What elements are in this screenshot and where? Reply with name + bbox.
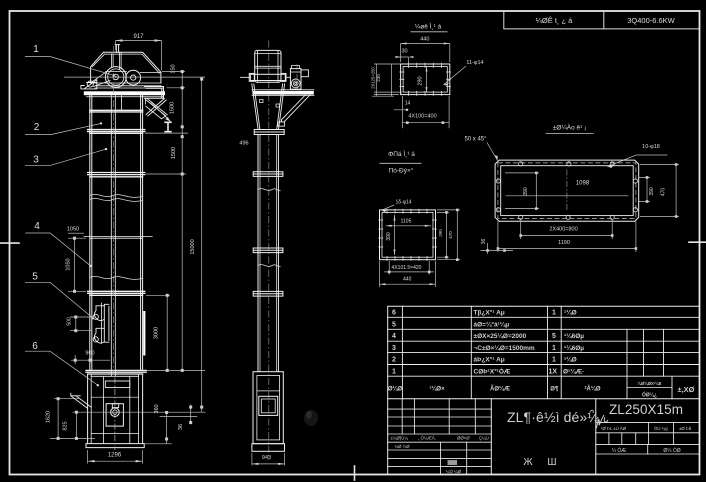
svg-text:30: 30 bbox=[401, 49, 407, 55]
svg-text:496: 496 bbox=[239, 141, 248, 147]
svg-text:4X101.5=420: 4X101.5=420 bbox=[392, 265, 422, 271]
svg-text:10-φ18: 10-φ18 bbox=[642, 144, 660, 150]
svg-text:1296: 1296 bbox=[108, 453, 122, 459]
svg-text:¼Ø ½Ø: ¼Ø ½Ø bbox=[395, 444, 411, 449]
svg-text:2: 2 bbox=[34, 122, 40, 133]
svg-text:1500: 1500 bbox=[170, 102, 176, 114]
svg-text:390: 390 bbox=[386, 232, 392, 241]
svg-text:Ç¼Ù: Ç¼Ù bbox=[479, 436, 489, 441]
svg-text:Ж: Ж bbox=[523, 457, 533, 468]
svg-text:¼Ó ¼Ø: ¼Ó ¼Ø bbox=[446, 469, 462, 474]
svg-text:1δ-φ14: 1δ-φ14 bbox=[395, 200, 411, 206]
svg-text:50 x 45°: 50 x 45° bbox=[464, 137, 487, 143]
svg-text:15000: 15000 bbox=[190, 239, 196, 254]
svg-text:1: 1 bbox=[33, 44, 39, 55]
svg-text:360: 360 bbox=[154, 404, 160, 413]
svg-text:¹¼6Øµ: ¹¼6Øµ bbox=[564, 344, 584, 352]
svg-text:1: 1 bbox=[552, 345, 556, 352]
svg-text:±,XØ: ±,XØ bbox=[677, 385, 694, 394]
svg-text:1190: 1190 bbox=[558, 240, 570, 246]
svg-text:4: 4 bbox=[34, 221, 40, 232]
svg-text:Ø¼Ø: Ø¼Ø bbox=[388, 386, 403, 393]
svg-text:943: 943 bbox=[262, 455, 271, 461]
svg-text:290: 290 bbox=[418, 76, 424, 85]
svg-text:5: 5 bbox=[392, 321, 396, 328]
svg-text:¹¼6Øµ: ¹¼6Øµ bbox=[564, 332, 584, 340]
svg-text:2: 2 bbox=[392, 357, 396, 364]
svg-text:Ø¹¼Æ·: Ø¹¼Æ· bbox=[563, 367, 584, 375]
svg-text:²Å¼Ø: ²Å¼Ø bbox=[584, 386, 600, 393]
svg-text:1500: 1500 bbox=[171, 147, 177, 159]
svg-text:3000: 3000 bbox=[154, 327, 160, 339]
svg-text:1105: 1105 bbox=[401, 219, 412, 225]
svg-text:2X125=250: 2X125=250 bbox=[371, 67, 376, 89]
svg-text:Tβ¿X°¹ Aμ: Tβ¿X°¹ Aμ bbox=[474, 309, 505, 317]
svg-text:390: 390 bbox=[523, 187, 529, 196]
svg-text:470: 470 bbox=[661, 188, 667, 197]
svg-text:,¸Ó¼ÆÅ,: ,¸Ó¼ÆÅ, bbox=[418, 436, 436, 441]
svg-text:Ш: Ш bbox=[547, 457, 556, 468]
svg-text:230: 230 bbox=[376, 74, 381, 82]
svg-text:ZL¶·ê½ì dé»¼: ZL¶·ê½ì dé»¼ bbox=[507, 409, 599, 425]
svg-text:1050: 1050 bbox=[66, 258, 72, 270]
svg-text:6: 6 bbox=[392, 310, 396, 317]
svg-text:¼ØÊ t¸ ¿ á: ¼ØÊ t¸ ¿ á bbox=[536, 16, 574, 25]
svg-text:2X400=800: 2X400=800 bbox=[549, 227, 577, 233]
svg-text:¼øê Ì¸¹ á: ¼øê Ì¸¹ á bbox=[415, 22, 442, 31]
svg-text:áØ=¼°á¹¼μ: áØ=¼°á¹¼μ bbox=[474, 320, 510, 328]
svg-text:11-φ14: 11-φ14 bbox=[466, 60, 483, 66]
svg-text:ΦΠá Ì¸¹ á: ΦΠá Ì¸¹ á bbox=[388, 149, 415, 158]
svg-text:5: 5 bbox=[552, 333, 556, 340]
svg-text:3Q400-6.6KW: 3Q400-6.6KW bbox=[627, 16, 675, 25]
svg-text:¹¼Ø×: ¹¼Ø× bbox=[429, 386, 445, 393]
svg-text:36: 36 bbox=[178, 424, 184, 430]
svg-text:1098: 1098 bbox=[576, 181, 590, 187]
svg-text:440: 440 bbox=[403, 277, 412, 283]
svg-text:390: 390 bbox=[438, 229, 443, 237]
svg-text:¹¼Ø: ¹¼Ø bbox=[564, 356, 577, 364]
svg-text:3: 3 bbox=[33, 155, 39, 166]
svg-text:470: 470 bbox=[448, 231, 453, 239]
svg-text:1620: 1620 bbox=[46, 411, 52, 423]
svg-text:¼ ÓÆ: ¼ ÓÆ bbox=[612, 447, 626, 454]
svg-text:¹Ø ÞL ±Ù ÃØ: ¹Ø ÞL ±Ù ÃØ bbox=[601, 426, 627, 431]
svg-text:500: 500 bbox=[67, 317, 73, 326]
svg-text:Πó-Ðý×°: Πó-Ðý×° bbox=[389, 167, 414, 175]
svg-text:±Ø¼Ào ê¹ ¡: ±Ø¼Ào ê¹ ¡ bbox=[553, 123, 587, 132]
svg-text:4: 4 bbox=[392, 333, 396, 340]
svg-text:825: 825 bbox=[63, 421, 69, 430]
svg-text:±ØX×25¼Ø=2000: ±ØX×25¼Ø=2000 bbox=[474, 332, 527, 340]
svg-text:ØØ×Ø: ØØ×Ø bbox=[457, 436, 470, 441]
svg-text:ZL250X15m: ZL250X15m bbox=[609, 402, 683, 417]
svg-text:ÃØ¼Æ: ÃØ¼Æ bbox=[490, 386, 510, 393]
svg-text:6: 6 bbox=[32, 341, 38, 352]
svg-text:150: 150 bbox=[171, 64, 177, 73]
svg-text:36: 36 bbox=[481, 239, 487, 245]
svg-text:¼Ø¼ØX¹¼E: ¼Ø¼ØX¹¼E bbox=[638, 381, 662, 386]
svg-text:¹¼Ø: ¹¼Ø bbox=[564, 309, 577, 317]
svg-text:1: 1 bbox=[552, 310, 556, 317]
svg-text:ÓÙ ¼g: ÓÙ ¼g bbox=[654, 426, 668, 431]
svg-text:440: 440 bbox=[420, 37, 429, 43]
svg-text:áÞ¿X°¹ Aμ: áÞ¿X°¹ Aμ bbox=[474, 356, 505, 364]
svg-text:CØÞ¹X°¹ÓÆ: CØÞ¹X°¹ÓÆ bbox=[474, 366, 511, 375]
svg-text:±Ø Þã: ±Ø Þã bbox=[679, 426, 692, 431]
svg-text:¬C±Ø×¼Ø=1500mm: ¬C±Ø×¼Ø=1500mm bbox=[474, 344, 535, 352]
svg-text:14: 14 bbox=[405, 101, 411, 107]
svg-text:Ø¶: Ø¶ bbox=[550, 387, 559, 393]
svg-text:917: 917 bbox=[133, 34, 144, 40]
svg-text:±¼Ø(Ù¼: ±¼Ø(Ù¼ bbox=[391, 436, 409, 441]
svg-text:5: 5 bbox=[32, 272, 38, 283]
svg-text:900: 900 bbox=[85, 351, 94, 357]
svg-text:1050: 1050 bbox=[67, 227, 79, 233]
svg-text:4X100=400: 4X100=400 bbox=[408, 114, 436, 120]
svg-text:3: 3 bbox=[392, 345, 396, 352]
svg-text:Ø¼ ÓØ: Ø¼ ÓØ bbox=[663, 447, 680, 454]
svg-text:ÓØ¼¿: ÓØ¼¿ bbox=[642, 391, 657, 399]
svg-text:390: 390 bbox=[649, 187, 655, 196]
svg-text:1: 1 bbox=[392, 368, 396, 375]
svg-text:1X: 1X bbox=[549, 368, 558, 375]
svg-text:1: 1 bbox=[552, 357, 556, 364]
